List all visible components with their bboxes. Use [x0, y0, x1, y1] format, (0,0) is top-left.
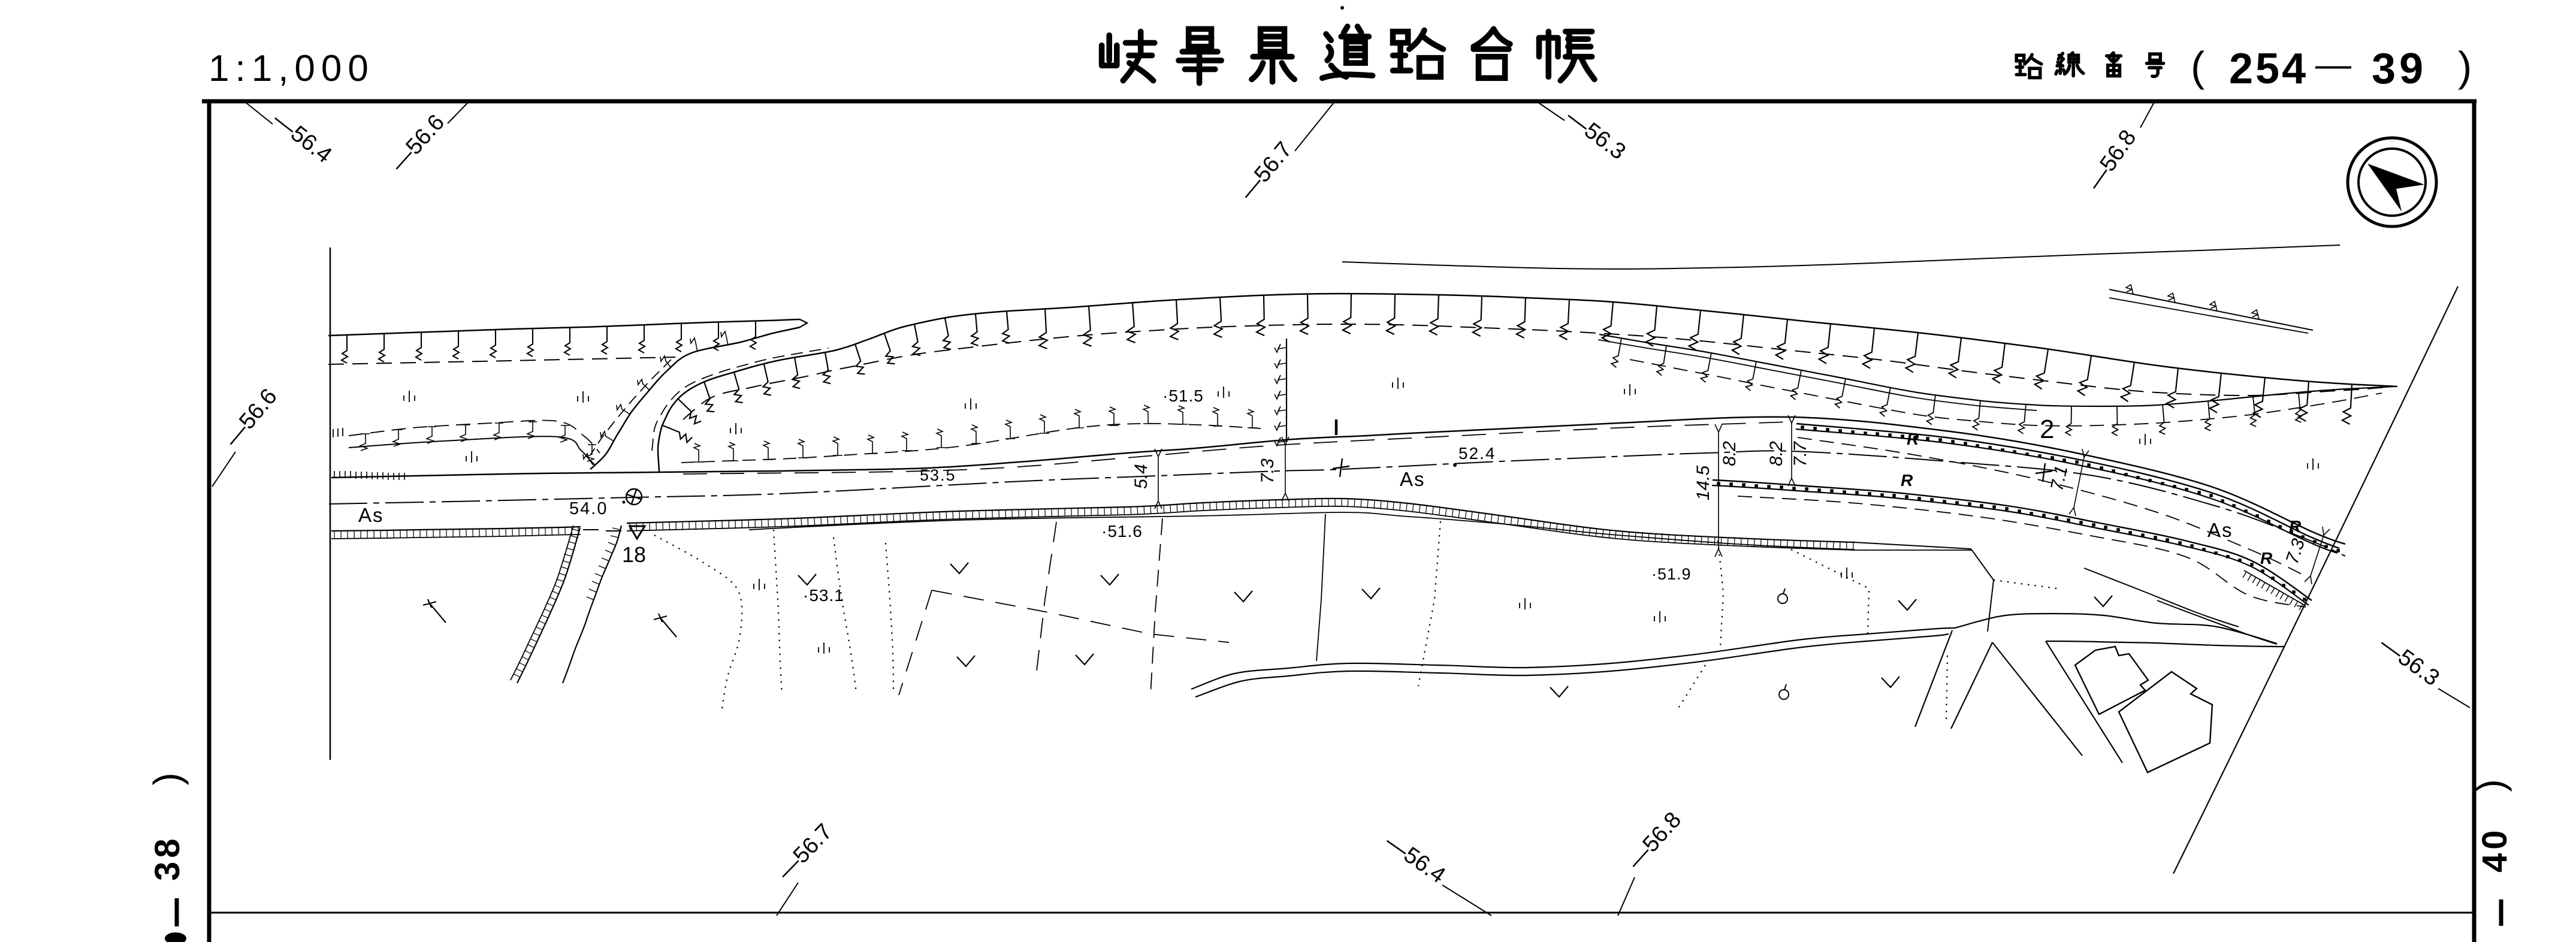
svg-text:R: R	[1901, 471, 1913, 490]
svg-text:(: (	[2191, 43, 2204, 90]
svg-text:14.5: 14.5	[1693, 465, 1713, 500]
svg-text:5.4: 5.4	[1131, 464, 1151, 489]
svg-text:7.3: 7.3	[1258, 458, 1278, 484]
svg-text:): )	[2469, 779, 2512, 792]
svg-text:1:1,000: 1:1,000	[209, 48, 375, 89]
svg-text:As: As	[358, 504, 384, 526]
svg-text:8.2: 8.2	[1720, 441, 1740, 466]
svg-text:8.2: 8.2	[1766, 441, 1786, 466]
svg-text:As: As	[1400, 468, 1426, 490]
svg-text:·53.1: ·53.1	[803, 586, 844, 605]
svg-text:38: 38	[148, 835, 187, 881]
svg-text:52.4: 52.4	[1458, 444, 1496, 463]
svg-text:R: R	[2260, 549, 2273, 567]
svg-text:·51.6: ·51.6	[1101, 522, 1143, 541]
svg-text:7.7: 7.7	[1790, 441, 1810, 467]
svg-text:2: 2	[2040, 415, 2054, 444]
svg-text:18: 18	[622, 542, 646, 567]
svg-text:As: As	[2207, 519, 2233, 541]
svg-text:39: 39	[2372, 45, 2427, 93]
svg-text:R: R	[1907, 430, 1919, 448]
svg-text:): )	[2458, 43, 2472, 90]
svg-text:): )	[146, 772, 189, 785]
svg-text:·51.9: ·51.9	[1651, 565, 1692, 583]
svg-text:254: 254	[2229, 45, 2308, 93]
svg-text:R: R	[2289, 517, 2302, 536]
svg-text:53.5: 53.5	[920, 466, 956, 484]
svg-text:54.0: 54.0	[569, 499, 608, 518]
svg-text:40: 40	[2475, 826, 2514, 872]
svg-text:·51.5: ·51.5	[1162, 387, 1204, 405]
svg-text:—: —	[2315, 44, 2351, 84]
